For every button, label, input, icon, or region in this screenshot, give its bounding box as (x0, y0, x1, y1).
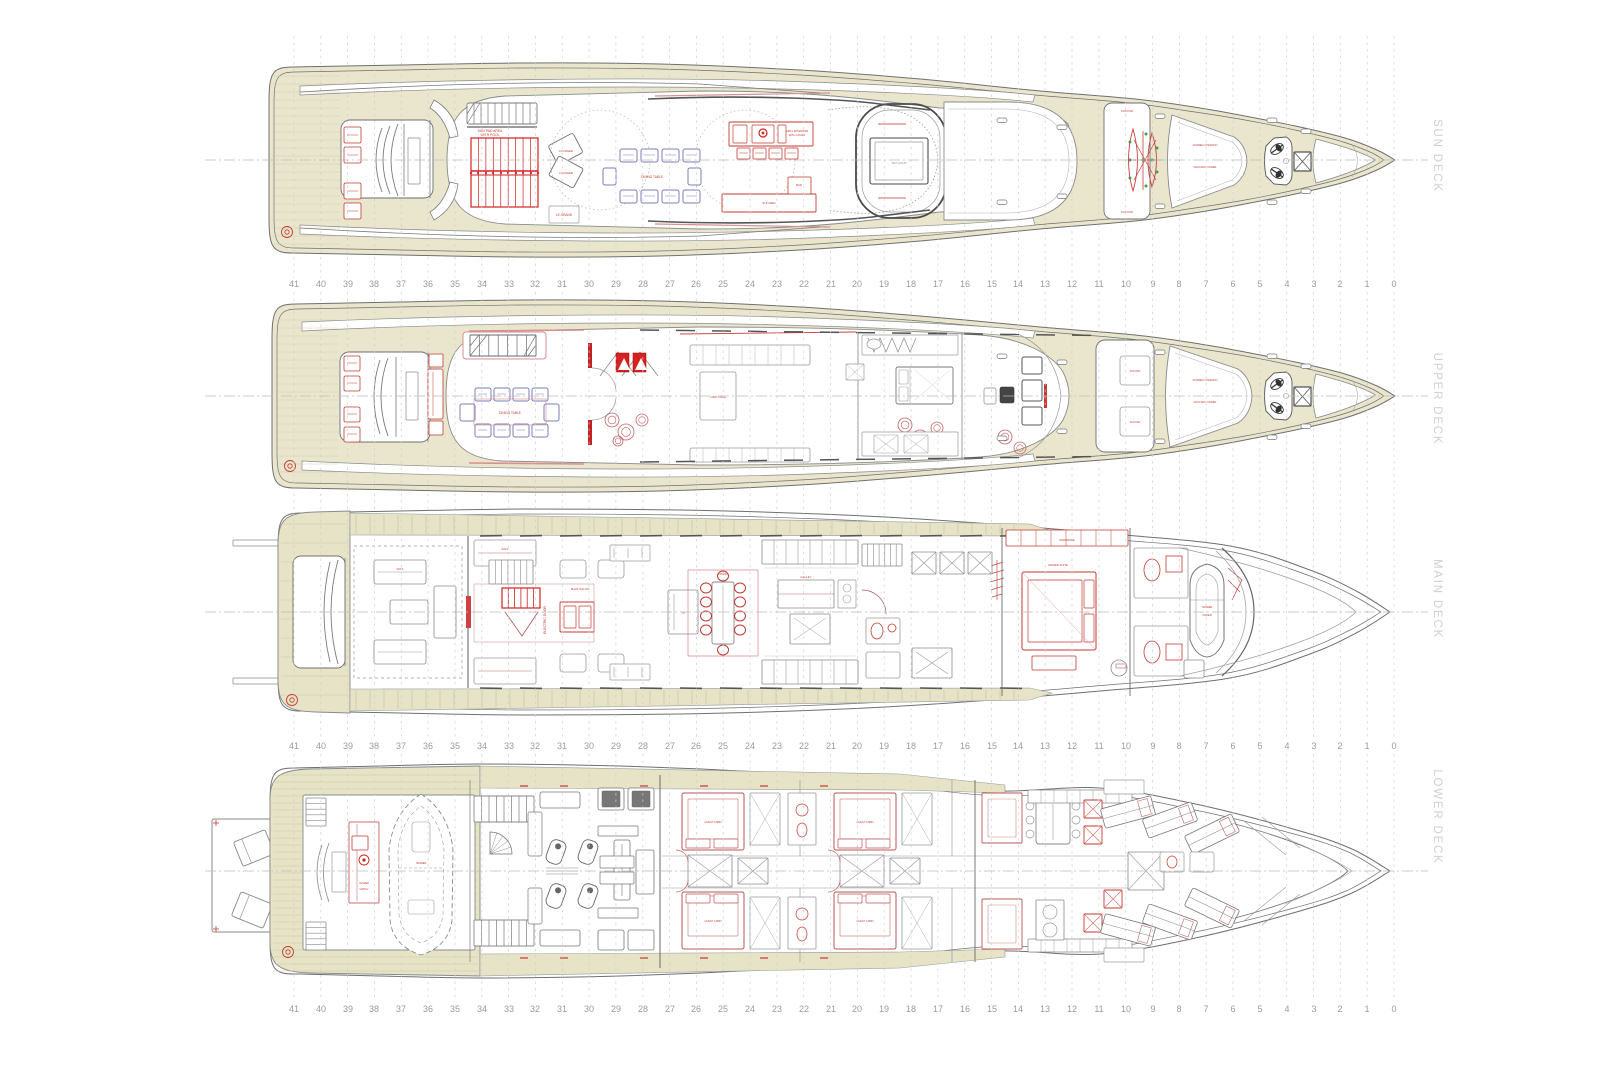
svg-text:27: 27 (665, 279, 675, 289)
svg-text:36: 36 (423, 1004, 433, 1014)
svg-text:2: 2 (1337, 1004, 1342, 1014)
svg-text:TENDER: TENDER (416, 861, 427, 865)
svg-text:24: 24 (745, 741, 755, 751)
svg-text:29: 29 (611, 279, 621, 289)
svg-text:27: 27 (665, 741, 675, 751)
svg-text:9: 9 (1150, 741, 1155, 751)
svg-text:SUN DECK: SUN DECK (1431, 119, 1443, 193)
svg-text:21: 21 (826, 741, 836, 751)
svg-text:17: 17 (933, 741, 943, 751)
svg-text:32: 32 (530, 741, 540, 751)
svg-text:WALKWAY UNDER: WALKWAY UNDER (1194, 400, 1217, 404)
svg-text:WARDROBE: WARDROBE (1059, 538, 1074, 542)
svg-text:20: 20 (852, 279, 862, 289)
svg-text:SUNBED 2 PERSON: SUNBED 2 PERSON (1193, 143, 1218, 147)
svg-text:28: 28 (638, 1004, 648, 1014)
svg-text:40: 40 (316, 279, 326, 289)
svg-text:40: 40 (316, 741, 326, 751)
svg-text:2: 2 (1337, 741, 1342, 751)
svg-text:LE GRAND: LE GRAND (556, 213, 573, 217)
svg-text:41: 41 (289, 1004, 299, 1014)
svg-text:0: 0 (1391, 279, 1396, 289)
svg-text:UPPER DECK: UPPER DECK (1431, 353, 1443, 446)
svg-text:1: 1 (1364, 741, 1369, 751)
svg-text:16: 16 (960, 1004, 970, 1014)
svg-text:MAIN DECK: MAIN DECK (1431, 559, 1443, 639)
svg-text:15: 15 (987, 741, 997, 751)
svg-text:14: 14 (1013, 1004, 1023, 1014)
svg-text:TENDER: TENDER (1202, 605, 1213, 609)
svg-text:35: 35 (450, 741, 460, 751)
svg-text:MAIN SALON: MAIN SALON (571, 587, 590, 591)
svg-text:36: 36 (423, 741, 433, 751)
svg-text:26: 26 (691, 279, 701, 289)
svg-text:14: 14 (1013, 279, 1023, 289)
svg-text:6: 6 (1230, 1004, 1235, 1014)
svg-text:WALKWAY UNDER: WALKWAY UNDER (1194, 165, 1217, 169)
svg-text:2: 2 (1337, 279, 1342, 289)
svg-text:41: 41 (289, 279, 299, 289)
svg-text:3: 3 (1311, 279, 1316, 289)
svg-text:13: 13 (1040, 1004, 1050, 1014)
svg-text:3: 3 (1311, 741, 1316, 751)
svg-text:SUNBED 2 PERSON: SUNBED 2 PERSON (1193, 378, 1218, 382)
svg-text:4: 4 (1284, 279, 1289, 289)
svg-text:6: 6 (1230, 741, 1235, 751)
svg-text:15: 15 (987, 1004, 997, 1014)
svg-text:38: 38 (369, 279, 379, 289)
svg-text:25: 25 (718, 279, 728, 289)
svg-text:GUEST CABIN: GUEST CABIN (705, 821, 722, 824)
svg-text:23: 23 (772, 279, 782, 289)
svg-text:WITH POOL: WITH POOL (480, 133, 499, 137)
svg-text:ELECTRIC DOOR: ELECTRIC DOOR (543, 606, 547, 634)
svg-text:38: 38 (369, 1004, 379, 1014)
svg-text:29: 29 (611, 741, 621, 751)
svg-text:8: 8 (1176, 1004, 1181, 1014)
svg-text:LOUNGER: LOUNGER (559, 149, 573, 153)
svg-text:0: 0 (1391, 1004, 1396, 1014)
svg-text:11: 11 (1094, 279, 1103, 289)
svg-text:6: 6 (1230, 279, 1235, 289)
svg-text:30: 30 (584, 1004, 594, 1014)
svg-text:3: 3 (1311, 1004, 1316, 1014)
svg-text:30: 30 (584, 279, 594, 289)
svg-text:40: 40 (316, 1004, 326, 1014)
svg-text:12: 12 (1067, 741, 1077, 751)
svg-text:1: 1 (1364, 1004, 1369, 1014)
svg-text:34: 34 (477, 741, 487, 751)
svg-text:28: 28 (638, 741, 648, 751)
svg-text:37: 37 (396, 279, 406, 289)
svg-text:SUN PAD: SUN PAD (1121, 109, 1133, 113)
svg-text:5: 5 (1257, 741, 1262, 751)
svg-text:7: 7 (1203, 279, 1208, 289)
svg-text:33: 33 (504, 741, 514, 751)
svg-text:38: 38 (369, 741, 379, 751)
svg-text:11: 11 (1094, 1004, 1103, 1014)
svg-text:SUN PAD: SUN PAD (1130, 421, 1141, 424)
svg-text:19: 19 (879, 741, 889, 751)
svg-text:37: 37 (396, 1004, 406, 1014)
svg-text:28: 28 (638, 279, 648, 289)
svg-text:17: 17 (933, 1004, 943, 1014)
svg-text:35: 35 (450, 279, 460, 289)
svg-text:21: 21 (826, 279, 836, 289)
svg-text:9: 9 (1150, 279, 1155, 289)
svg-text:14: 14 (1013, 741, 1023, 751)
svg-text:13: 13 (1040, 279, 1050, 289)
svg-text:20: 20 (852, 1004, 862, 1014)
svg-text:24: 24 (745, 279, 755, 289)
svg-text:30: 30 (584, 741, 594, 751)
svg-text:36: 36 (423, 279, 433, 289)
svg-text:CARD TABLE: CARD TABLE (710, 395, 726, 399)
svg-text:GUEST CABIN: GUEST CABIN (857, 920, 874, 923)
svg-text:16: 16 (960, 741, 970, 751)
svg-text:OWNER SUITE: OWNER SUITE (1048, 563, 1068, 567)
svg-text:SOFA: SOFA (397, 567, 404, 571)
svg-text:31: 31 (557, 279, 567, 289)
svg-text:19: 19 (879, 279, 889, 289)
svg-text:39: 39 (343, 1004, 353, 1014)
svg-text:35: 35 (450, 1004, 460, 1014)
svg-text:32: 32 (530, 279, 540, 289)
svg-text:24: 24 (745, 1004, 755, 1014)
svg-text:33: 33 (504, 1004, 514, 1014)
svg-text:23: 23 (772, 741, 782, 751)
svg-text:TV: TV (681, 611, 685, 615)
svg-text:10: 10 (1121, 1004, 1131, 1014)
svg-text:12: 12 (1067, 279, 1077, 289)
svg-text:19: 19 (879, 1004, 889, 1014)
svg-text:TENDER: TENDER (359, 882, 369, 885)
svg-text:WITH COVER: WITH COVER (789, 133, 806, 137)
svg-text:25: 25 (718, 741, 728, 751)
svg-text:5: 5 (1257, 279, 1262, 289)
svg-text:SUN BED: SUN BED (762, 201, 776, 205)
svg-text:17: 17 (933, 279, 943, 289)
svg-text:9: 9 (1150, 1004, 1155, 1014)
svg-text:18: 18 (906, 1004, 916, 1014)
svg-text:10: 10 (1121, 279, 1131, 289)
svg-text:12: 12 (1067, 1004, 1077, 1014)
svg-text:22: 22 (799, 279, 809, 289)
svg-text:21: 21 (826, 1004, 836, 1014)
svg-text:33: 33 (504, 279, 514, 289)
svg-text:BAR: BAR (796, 183, 802, 187)
svg-text:SKYLIGHT: SKYLIGHT (892, 161, 907, 165)
svg-text:SUPPLY: SUPPLY (359, 888, 369, 891)
svg-text:DINING TABLE: DINING TABLE (499, 411, 521, 415)
svg-text:11: 11 (1094, 741, 1103, 751)
svg-text:GUEST CABIN: GUEST CABIN (857, 821, 874, 824)
svg-text:10: 10 (1121, 741, 1131, 751)
svg-text:SOFA: SOFA (502, 547, 509, 551)
svg-text:5: 5 (1257, 1004, 1262, 1014)
svg-text:SUN PAD: SUN PAD (1121, 210, 1133, 214)
svg-text:18: 18 (906, 279, 916, 289)
svg-text:LOUNGER: LOUNGER (559, 171, 573, 175)
svg-text:31: 31 (557, 741, 567, 751)
svg-text:13: 13 (1040, 741, 1050, 751)
svg-text:7: 7 (1203, 1004, 1208, 1014)
svg-text:22: 22 (799, 1004, 809, 1014)
svg-text:8: 8 (1176, 741, 1181, 751)
svg-text:27: 27 (665, 1004, 675, 1014)
svg-text:4: 4 (1284, 1004, 1289, 1014)
svg-text:UNDER: UNDER (1202, 613, 1211, 617)
svg-text:23: 23 (772, 1004, 782, 1014)
svg-text:7: 7 (1203, 741, 1208, 751)
svg-text:LOWER DECK: LOWER DECK (1431, 769, 1443, 864)
svg-text:DINING TABLE: DINING TABLE (641, 175, 663, 179)
svg-text:34: 34 (477, 279, 487, 289)
svg-text:29: 29 (611, 1004, 621, 1014)
svg-text:16: 16 (960, 279, 970, 289)
svg-text:32: 32 (530, 1004, 540, 1014)
svg-text:0: 0 (1391, 741, 1396, 751)
svg-text:GUEST CABIN: GUEST CABIN (705, 920, 722, 923)
svg-text:18: 18 (906, 741, 916, 751)
svg-text:26: 26 (691, 1004, 701, 1014)
svg-text:37: 37 (396, 741, 406, 751)
svg-text:26: 26 (691, 741, 701, 751)
svg-text:34: 34 (477, 1004, 487, 1014)
svg-text:8: 8 (1176, 279, 1181, 289)
svg-text:20: 20 (852, 741, 862, 751)
svg-text:31: 31 (557, 1004, 567, 1014)
svg-text:4: 4 (1284, 741, 1289, 751)
svg-text:SUN PAD: SUN PAD (1130, 370, 1141, 373)
svg-text:GRILL W/SMOKER: GRILL W/SMOKER (786, 129, 809, 133)
svg-text:39: 39 (343, 741, 353, 751)
svg-text:39: 39 (343, 279, 353, 289)
svg-text:GALLEY: GALLEY (801, 575, 812, 579)
svg-text:1: 1 (1364, 279, 1369, 289)
svg-text:15: 15 (987, 279, 997, 289)
svg-text:41: 41 (289, 741, 299, 751)
svg-text:22: 22 (799, 741, 809, 751)
svg-text:25: 25 (718, 1004, 728, 1014)
